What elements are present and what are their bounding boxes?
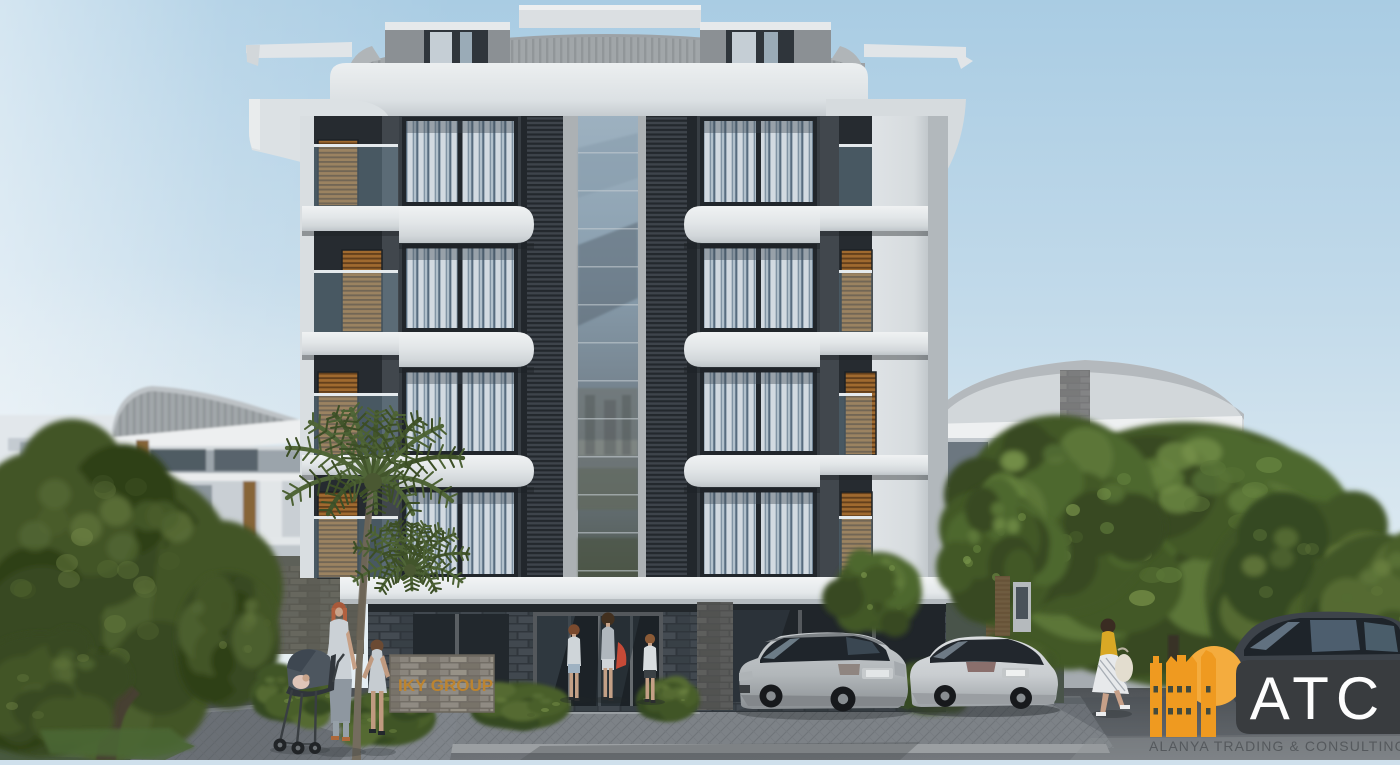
- svg-text:ALANYA TRADING & CONSULTING: ALANYA TRADING & CONSULTING: [1149, 738, 1400, 754]
- svg-text:IKY GROUP: IKY GROUP: [398, 676, 493, 695]
- svg-text:ATC: ATC: [1250, 665, 1387, 732]
